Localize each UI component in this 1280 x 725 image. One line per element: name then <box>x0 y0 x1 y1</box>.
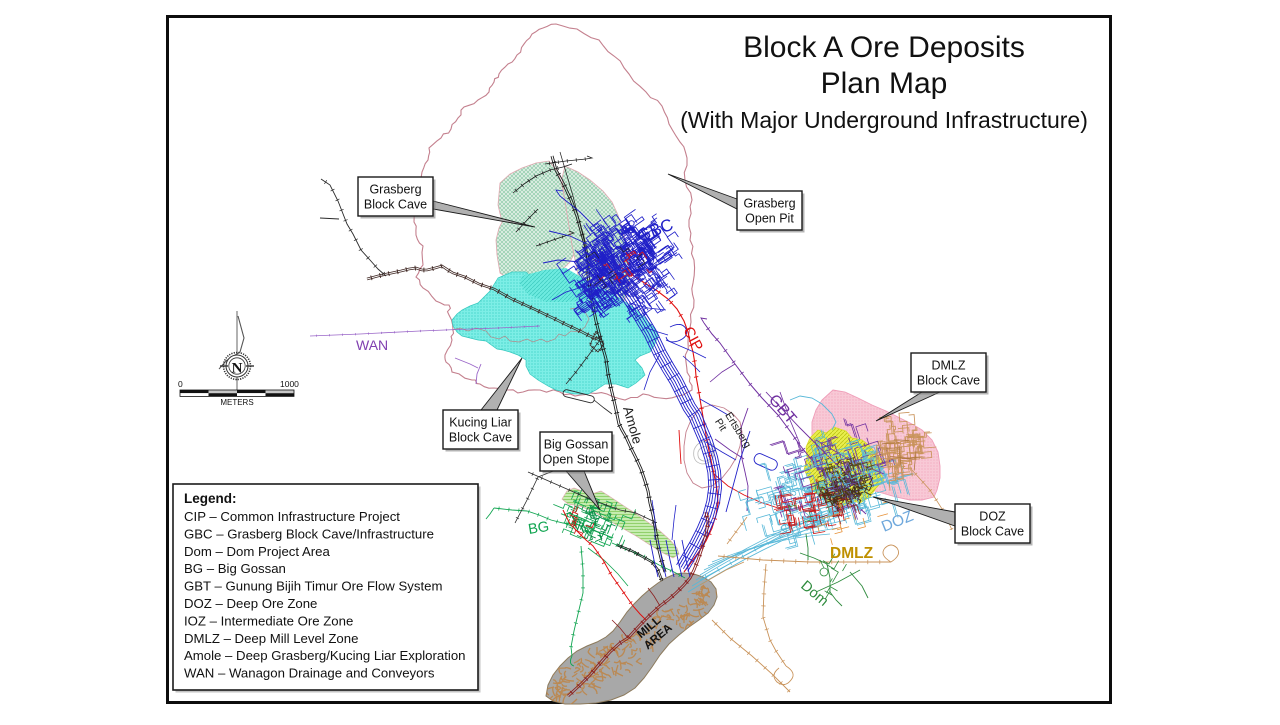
svg-text:Grasberg: Grasberg <box>743 197 795 211</box>
svg-text:CIP – Common Infrastructure Pr: CIP – Common Infrastructure Project <box>184 509 400 524</box>
svg-text:METERS: METERS <box>220 398 253 407</box>
svg-text:IOZ – Intermediate Ore Zone: IOZ – Intermediate Ore Zone <box>184 613 353 628</box>
svg-text:GBT – Gunung Bijih Timur Ore F: GBT – Gunung Bijih Timur Ore Flow System <box>184 579 442 594</box>
svg-text:(With Major Underground Infras: (With Major Underground Infrastructure) <box>680 107 1088 133</box>
svg-text:0: 0 <box>178 379 183 389</box>
svg-text:Amole – Deep Grasberg/Kucing L: Amole – Deep Grasberg/Kucing Liar Explor… <box>184 648 465 663</box>
svg-text:Open Pit: Open Pit <box>745 212 794 226</box>
svg-text:Open Stope: Open Stope <box>543 453 610 467</box>
svg-text:Block Cave: Block Cave <box>917 374 980 388</box>
svg-text:Kucing Liar: Kucing Liar <box>449 416 512 430</box>
svg-text:1000: 1000 <box>280 379 299 389</box>
svg-text:DOZ – Deep Ore Zone: DOZ – Deep Ore Zone <box>184 596 317 611</box>
svg-text:Plan Map: Plan Map <box>821 67 948 100</box>
svg-text:Block A Ore Deposits: Block A Ore Deposits <box>743 31 1025 64</box>
svg-text:Block Cave: Block Cave <box>449 431 512 445</box>
svg-text:Legend:: Legend: <box>184 491 237 506</box>
svg-text:BG – Big Gossan: BG – Big Gossan <box>184 561 286 576</box>
svg-text:WAN: WAN <box>356 337 388 353</box>
svg-text:BG: BG <box>527 519 550 538</box>
svg-text:DMLZ: DMLZ <box>830 545 874 562</box>
svg-text:WAN – Wanagon Drainage and Co: WAN – Wanagon Drainage and Conveyors <box>184 666 435 681</box>
svg-text:DMLZ – Deep Mill Level Zone: DMLZ – Deep Mill Level Zone <box>184 631 358 646</box>
svg-text:Big Gossan: Big Gossan <box>544 438 609 452</box>
svg-text:DOZ: DOZ <box>979 510 1006 524</box>
svg-text:Grasberg: Grasberg <box>369 183 421 197</box>
svg-text:Block Cave: Block Cave <box>364 198 427 212</box>
svg-text:N: N <box>232 361 243 377</box>
svg-text:DMLZ: DMLZ <box>931 359 965 373</box>
svg-text:Block Cave: Block Cave <box>961 525 1024 539</box>
svg-text:Dom – Dom Project Area: Dom – Dom Project Area <box>184 544 331 559</box>
svg-text:GBC – Grasberg Block Cave/Infr: GBC – Grasberg Block Cave/Infrastructure <box>184 526 434 541</box>
